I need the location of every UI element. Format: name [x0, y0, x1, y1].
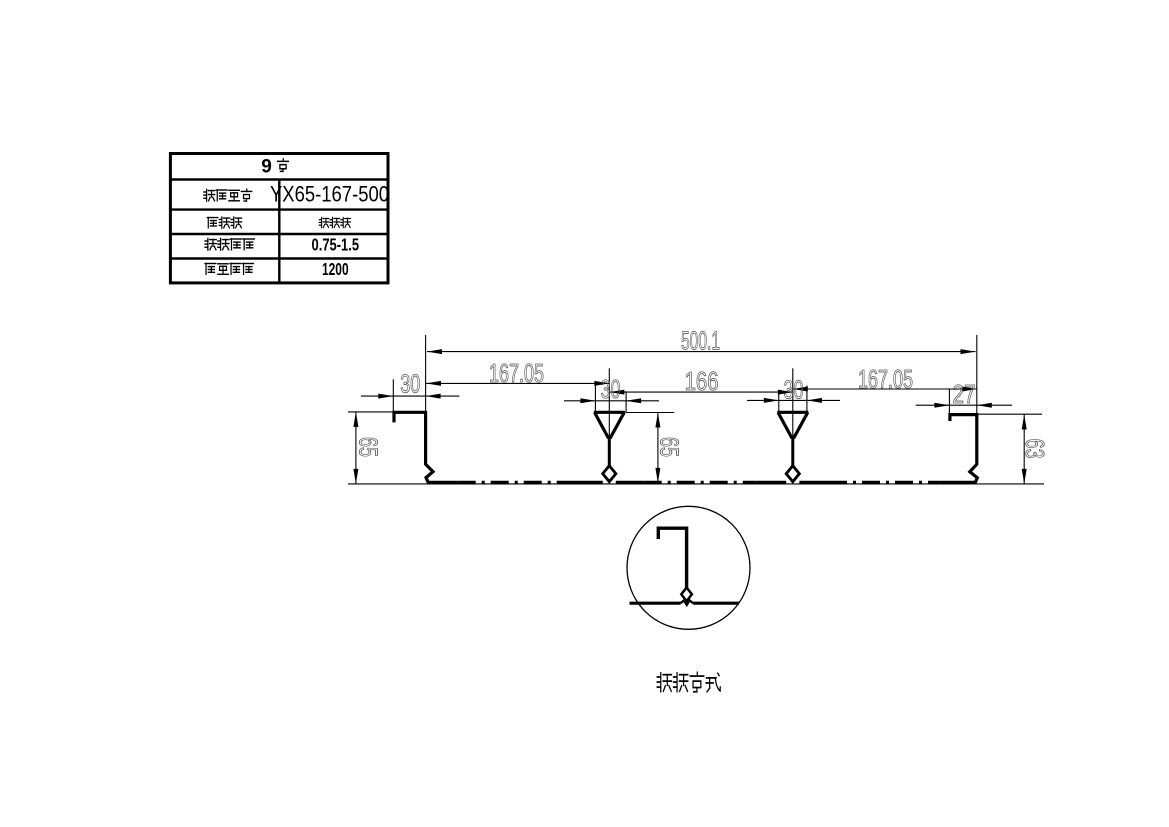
svg-text:YX65-167-500: YX65-167-500 [270, 182, 389, 207]
svg-text:1200: 1200 [322, 259, 349, 279]
svg-text:30: 30 [601, 376, 621, 404]
svg-text:0.75-1.5: 0.75-1.5 [312, 235, 360, 255]
svg-text:30: 30 [784, 377, 804, 405]
svg-text:500.1: 500.1 [681, 328, 720, 356]
svg-text:167.05: 167.05 [858, 366, 913, 394]
svg-text:65: 65 [354, 437, 382, 457]
svg-text:65: 65 [655, 437, 683, 457]
svg-text:30: 30 [400, 371, 420, 399]
svg-text:166: 166 [685, 368, 719, 396]
svg-text:27: 27 [953, 381, 976, 409]
svg-text:9: 9 [261, 156, 272, 177]
svg-text:63: 63 [1020, 439, 1048, 459]
svg-text:167.05: 167.05 [489, 360, 544, 388]
